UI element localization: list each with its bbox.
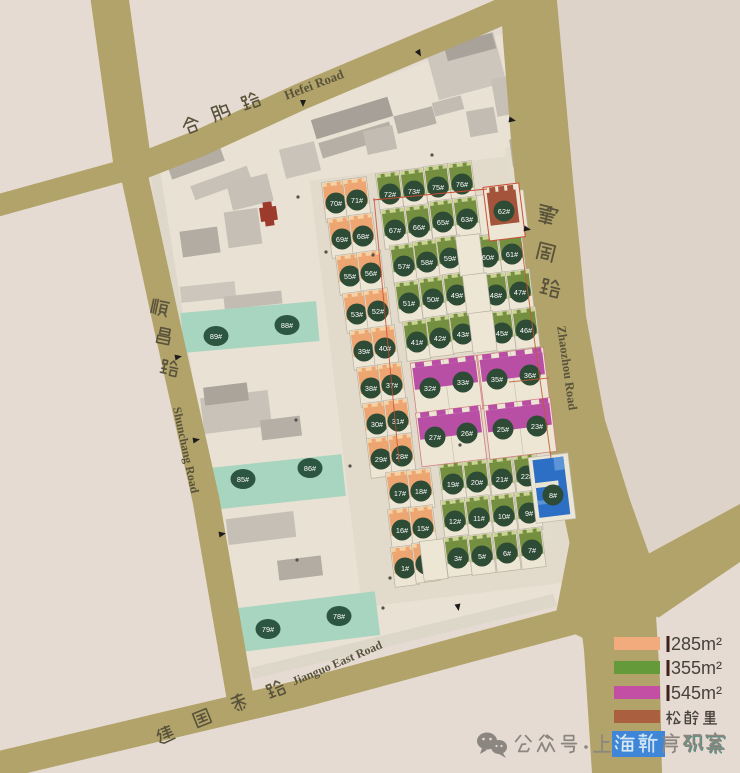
svg-text:11#: 11# xyxy=(473,514,486,523)
svg-text:53#: 53# xyxy=(351,310,364,319)
svg-text:18#: 18# xyxy=(415,487,428,496)
svg-text:31#: 31# xyxy=(392,417,405,426)
svg-text:65#: 65# xyxy=(437,218,450,227)
svg-text:56#: 56# xyxy=(365,269,378,278)
svg-text:12#: 12# xyxy=(449,517,462,526)
svg-text:5#: 5# xyxy=(478,552,487,561)
svg-text:70#: 70# xyxy=(330,199,343,208)
svg-text:58#: 58# xyxy=(421,258,434,267)
svg-text:60#: 60# xyxy=(482,253,495,262)
svg-text:10#: 10# xyxy=(498,512,511,521)
svg-text:23#: 23# xyxy=(531,422,544,431)
svg-text:55#: 55# xyxy=(344,272,357,281)
svg-text:16#: 16# xyxy=(396,526,409,535)
svg-text:51#: 51# xyxy=(403,299,416,308)
svg-text:27#: 27# xyxy=(429,433,442,442)
svg-text:42#: 42# xyxy=(434,334,447,343)
svg-text:73#: 73# xyxy=(408,187,421,196)
svg-text:66#: 66# xyxy=(413,223,426,232)
svg-text:78#: 78# xyxy=(333,612,346,621)
svg-text:36#: 36# xyxy=(524,371,537,380)
svg-text:86#: 86# xyxy=(304,464,317,473)
svg-text:9#: 9# xyxy=(525,509,534,518)
svg-text:47#: 47# xyxy=(514,288,527,297)
svg-text:355m²: 355m² xyxy=(671,658,722,678)
svg-text:76#: 76# xyxy=(456,180,469,189)
svg-text:57#: 57# xyxy=(398,262,411,271)
svg-text:8#: 8# xyxy=(549,491,558,500)
svg-text:19#: 19# xyxy=(447,480,460,489)
svg-text:46#: 46# xyxy=(520,326,533,335)
svg-text:59#: 59# xyxy=(444,254,457,263)
svg-text:50#: 50# xyxy=(427,295,440,304)
svg-text:17#: 17# xyxy=(394,489,407,498)
svg-text:26#: 26# xyxy=(461,429,474,438)
svg-text:1#: 1# xyxy=(401,564,410,573)
svg-text:15#: 15# xyxy=(417,524,430,533)
svg-text:43#: 43# xyxy=(457,330,470,339)
svg-text:20#: 20# xyxy=(471,478,484,487)
svg-text:89#: 89# xyxy=(210,332,223,341)
svg-text:49#: 49# xyxy=(451,291,464,300)
svg-text:62#: 62# xyxy=(498,207,511,216)
svg-text:3#: 3# xyxy=(454,554,463,563)
svg-text:25#: 25# xyxy=(497,425,510,434)
svg-text:63#: 63# xyxy=(461,215,474,224)
svg-text:45#: 45# xyxy=(496,329,509,338)
svg-text:32#: 32# xyxy=(424,384,437,393)
svg-text:41#: 41# xyxy=(411,338,424,347)
svg-text:67#: 67# xyxy=(389,226,402,235)
svg-text:7#: 7# xyxy=(528,546,537,555)
svg-text:6#: 6# xyxy=(503,549,512,558)
svg-text:85#: 85# xyxy=(237,475,250,484)
svg-text:39#: 39# xyxy=(358,347,371,356)
svg-text:38#: 38# xyxy=(365,384,378,393)
svg-text:48#: 48# xyxy=(490,291,503,300)
svg-text:75#: 75# xyxy=(432,183,445,192)
svg-text:68#: 68# xyxy=(357,232,370,241)
svg-text:52#: 52# xyxy=(372,307,385,316)
svg-text:61#: 61# xyxy=(506,250,519,259)
svg-text:40#: 40# xyxy=(379,344,392,353)
svg-text:30#: 30# xyxy=(371,420,384,429)
svg-text:285m²: 285m² xyxy=(671,634,722,654)
svg-text:29#: 29# xyxy=(375,455,388,464)
svg-text:33#: 33# xyxy=(457,378,470,387)
svg-text:69#: 69# xyxy=(336,235,349,244)
svg-text:545m²: 545m² xyxy=(671,683,722,703)
svg-text:88#: 88# xyxy=(281,321,294,330)
svg-text:35#: 35# xyxy=(491,375,504,384)
svg-text:79#: 79# xyxy=(262,625,275,634)
svg-text:21#: 21# xyxy=(496,475,509,484)
svg-text:71#: 71# xyxy=(351,196,364,205)
